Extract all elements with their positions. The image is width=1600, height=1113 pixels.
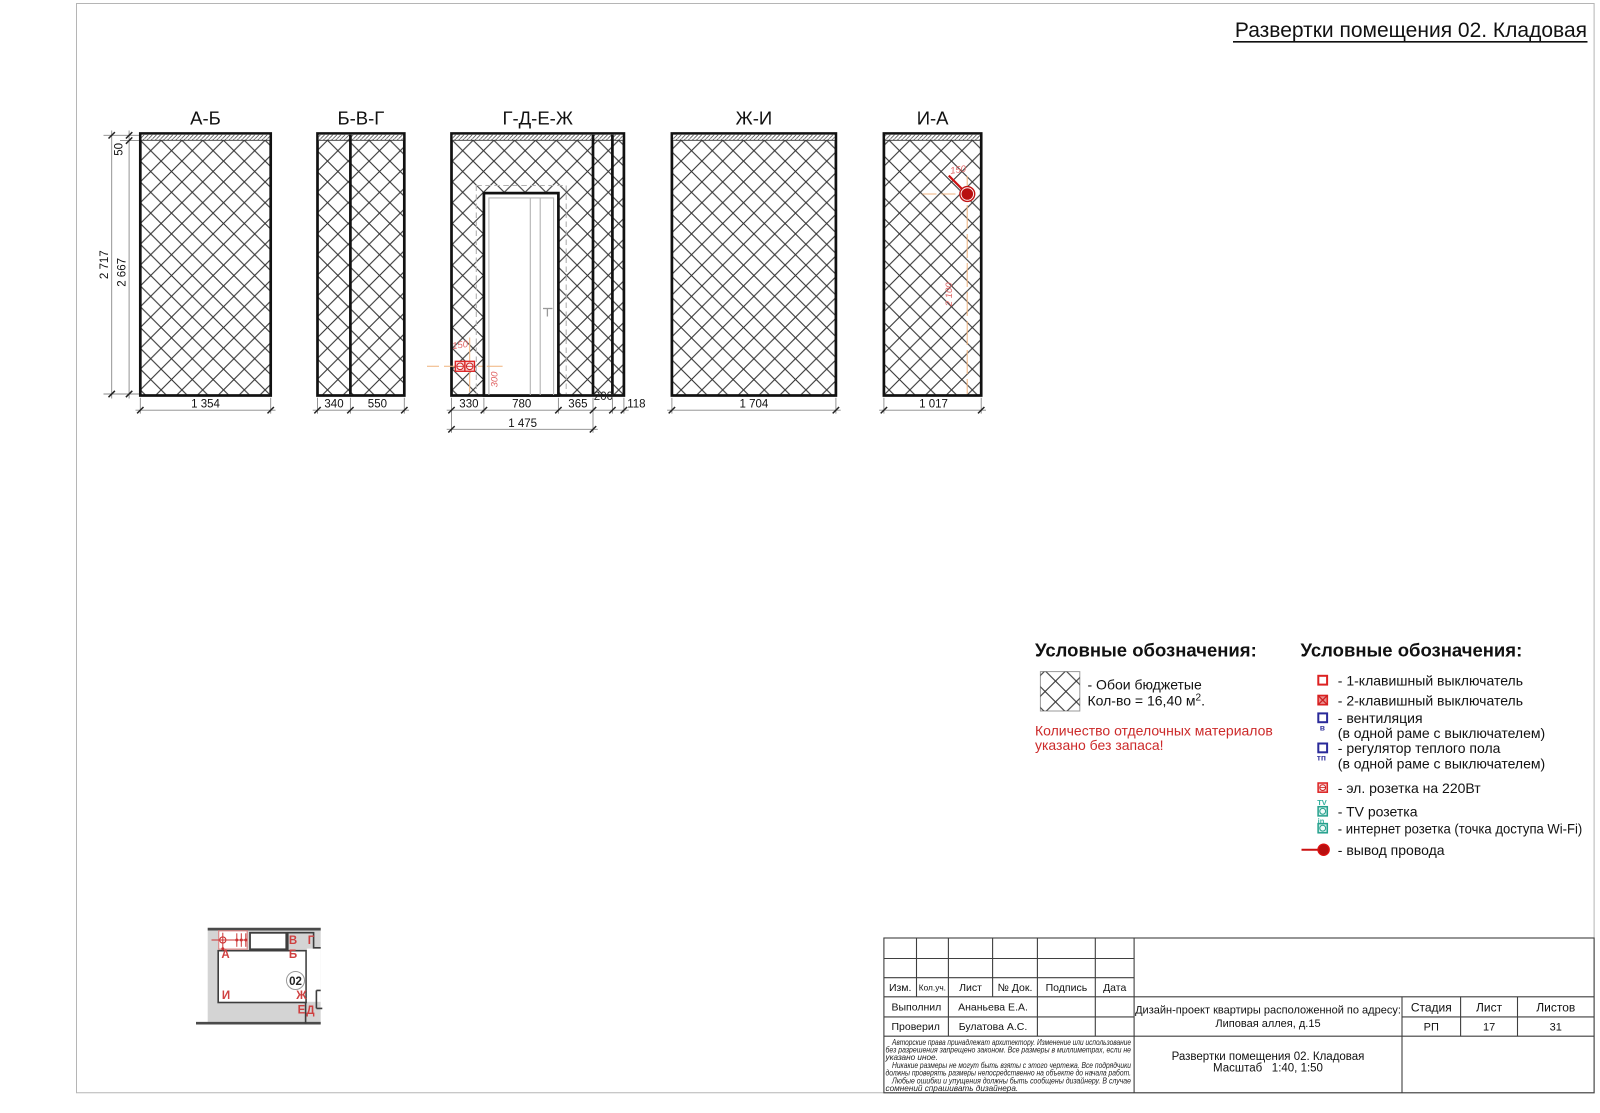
svg-text:Б: Б	[289, 949, 297, 961]
svg-text:сомнений спрашивать дизайнера.: сомнений спрашивать дизайнера.	[886, 1084, 1019, 1093]
svg-text:Дата: Дата	[1103, 982, 1126, 994]
svg-text:TV: TV	[1317, 798, 1327, 807]
svg-text:(в одной раме с выключателем): (в одной раме с выключателем)	[1338, 725, 1545, 741]
svg-text:- TV розетка: - TV розетка	[1338, 804, 1418, 820]
svg-text:Масштаб 1:40, 1:50: Масштаб 1:40, 1:50	[1213, 1063, 1323, 1075]
svg-text:Кол.уч.: Кол.уч.	[919, 982, 946, 992]
svg-text:Подпись: Подпись	[1046, 982, 1088, 994]
svg-text:Дизайн-проект квартиры располо: Дизайн-проект квартиры расположенной по …	[1135, 1005, 1401, 1017]
svg-text:А-Б: А-Б	[190, 108, 221, 129]
svg-text:Изм.: Изм.	[889, 982, 912, 994]
svg-text:- интернет розетка (точка дост: - интернет розетка (точка доступа Wi-Fi)	[1338, 821, 1583, 837]
svg-text:Б-В-Г: Б-В-Г	[337, 108, 384, 129]
svg-text:И: И	[222, 990, 230, 1002]
svg-text:в: в	[1320, 723, 1325, 733]
svg-text:Развертки помещения 02. Кладов: Развертки помещения 02. Кладовая	[1172, 1051, 1365, 1063]
svg-text:В: В	[289, 935, 297, 947]
svg-text:Ж: Ж	[295, 990, 307, 1002]
svg-text:Развертки помещения 02. Кладов: Развертки помещения 02. Кладовая	[1235, 19, 1587, 42]
svg-text:- Обои бюджетые: - Обои бюджетые	[1088, 677, 1202, 693]
svg-text:Ананьева Е.А.: Ананьева Е.А.	[958, 1002, 1028, 1014]
svg-text:1 704: 1 704	[740, 399, 769, 411]
svg-text:150: 150	[452, 339, 470, 352]
svg-text:Е: Е	[298, 1005, 306, 1017]
svg-text:300: 300	[490, 371, 501, 388]
svg-text:- 1-клавишный выключатель: - 1-клавишный выключатель	[1338, 673, 1523, 689]
svg-text:50: 50	[114, 143, 126, 156]
svg-text:Ж-И: Ж-И	[736, 108, 773, 129]
svg-text:РП: РП	[1424, 1022, 1439, 1034]
svg-text:118: 118	[627, 399, 645, 411]
svg-text:2 717: 2 717	[99, 250, 111, 279]
svg-text:Листов: Листов	[1536, 1001, 1575, 1015]
svg-text:1 354: 1 354	[191, 399, 220, 411]
svg-text:- эл. розетка на 220Вт: - эл. розетка на 220Вт	[1338, 780, 1481, 796]
svg-text:Булатова А.С.: Булатова А.С.	[959, 1021, 1028, 1033]
svg-text:17: 17	[1483, 1022, 1495, 1034]
svg-text:1 017: 1 017	[919, 399, 948, 411]
svg-text:365: 365	[568, 399, 587, 411]
svg-text:Д: Д	[306, 1005, 314, 1017]
svg-text:2 667: 2 667	[116, 258, 128, 287]
svg-text:200: 200	[594, 391, 613, 403]
svg-text:Лист: Лист	[959, 982, 982, 994]
svg-text:Выполнил: Выполнил	[892, 1002, 942, 1014]
svg-text:Г: Г	[308, 935, 315, 947]
svg-text:1 475: 1 475	[508, 418, 537, 430]
svg-text:Кол-во = 16,40 м2.: Кол-во = 16,40 м2.	[1088, 692, 1206, 709]
svg-text:Условные обозначения:: Условные обозначения:	[1301, 640, 1523, 661]
svg-text:Липовая аллея, д.15: Липовая аллея, д.15	[1215, 1018, 1320, 1030]
svg-text:Стадия: Стадия	[1411, 1001, 1452, 1015]
svg-text:(в одной раме с выключателем): (в одной раме с выключателем)	[1338, 755, 1545, 771]
svg-text:А: А	[221, 949, 229, 961]
svg-text:Г-Д-Е-Ж: Г-Д-Е-Ж	[502, 108, 572, 129]
svg-text:150: 150	[950, 164, 968, 177]
svg-text:2 100: 2 100	[944, 282, 955, 307]
svg-text:тп: тп	[1317, 753, 1326, 763]
svg-text:№ Док.: № Док.	[998, 982, 1033, 994]
svg-text:- регулятор теплого пола: - регулятор теплого пола	[1338, 740, 1501, 756]
svg-text:указано без запаса!: указано без запаса!	[1035, 737, 1164, 753]
svg-text:780: 780	[512, 399, 531, 411]
svg-text:Проверил: Проверил	[892, 1021, 940, 1033]
svg-text:- 2-клавишный выключатель: - 2-клавишный выключатель	[1338, 692, 1523, 708]
svg-text:- вентиляция: - вентиляция	[1338, 710, 1423, 726]
svg-text:31: 31	[1550, 1022, 1562, 1034]
svg-text:330: 330	[459, 399, 478, 411]
svg-text:Лист: Лист	[1476, 1001, 1503, 1015]
svg-text:02: 02	[289, 976, 302, 988]
svg-text:340: 340	[324, 399, 343, 411]
svg-text:- вывод провода: - вывод провода	[1338, 842, 1445, 858]
svg-text:Условные обозначения:: Условные обозначения:	[1035, 640, 1257, 661]
svg-text:И-А: И-А	[917, 108, 949, 129]
svg-text:550: 550	[368, 399, 387, 411]
